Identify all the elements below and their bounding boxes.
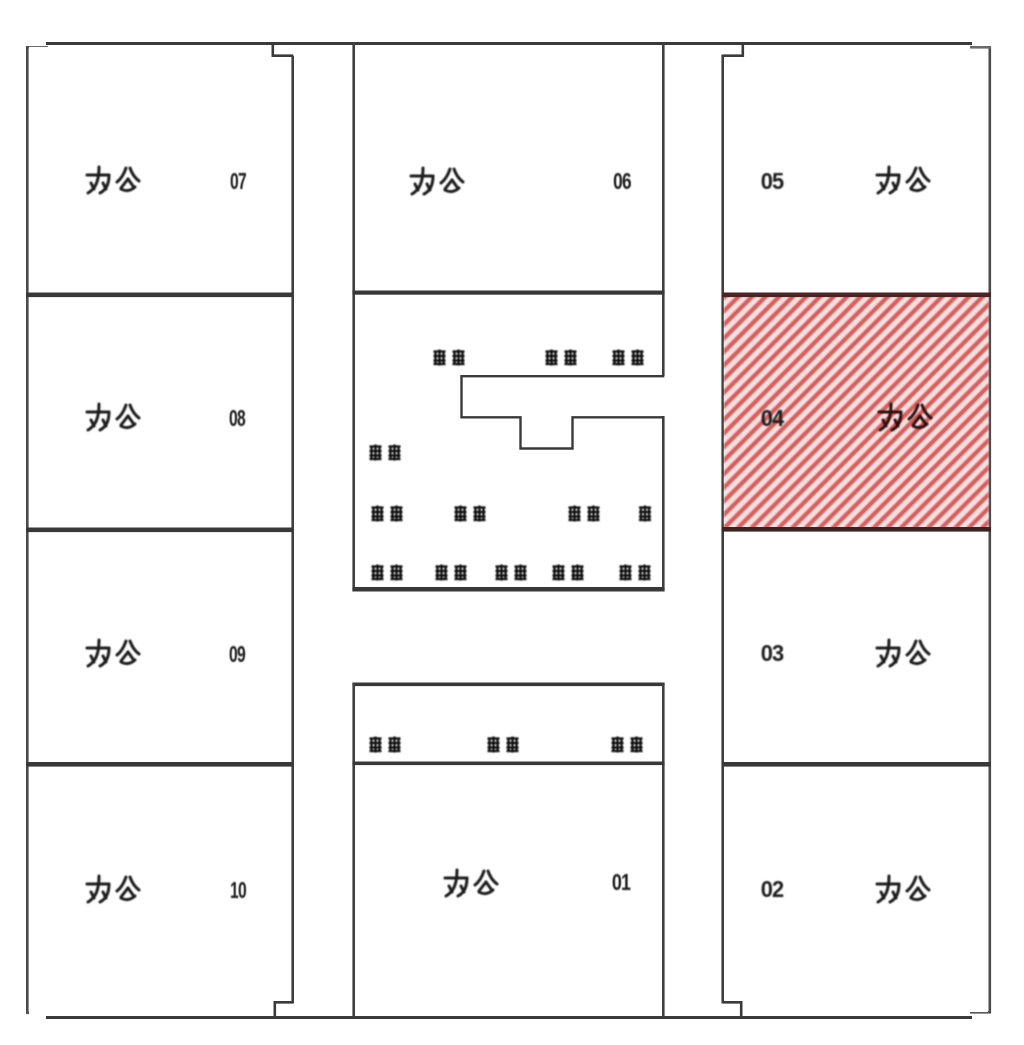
svg-text:08: 08 <box>229 406 246 432</box>
svg-text:07: 07 <box>230 169 247 195</box>
svg-text:01: 01 <box>612 870 631 896</box>
svg-text:04: 04 <box>761 405 785 431</box>
svg-text:06: 06 <box>613 170 631 195</box>
svg-text:02: 02 <box>761 876 784 902</box>
svg-text:10: 10 <box>230 878 247 904</box>
svg-text:03: 03 <box>761 640 784 666</box>
svg-text:09: 09 <box>229 642 246 668</box>
svg-text:05: 05 <box>761 168 784 194</box>
